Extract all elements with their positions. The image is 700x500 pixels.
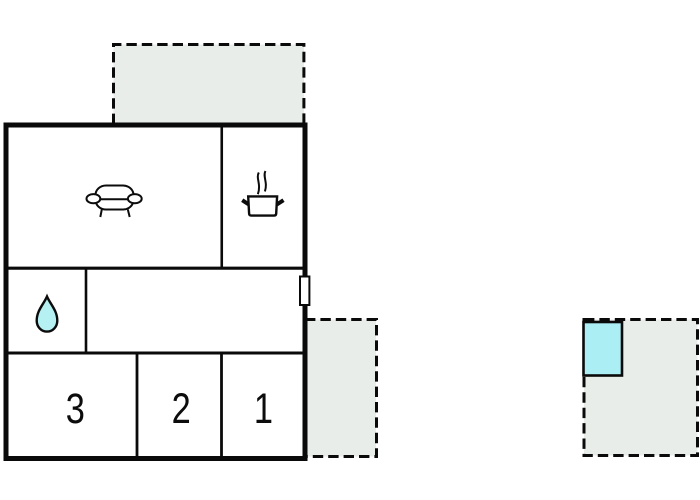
- svg-text:2: 2: [172, 385, 191, 432]
- svg-text:3: 3: [66, 385, 85, 432]
- svg-text:1: 1: [254, 385, 273, 432]
